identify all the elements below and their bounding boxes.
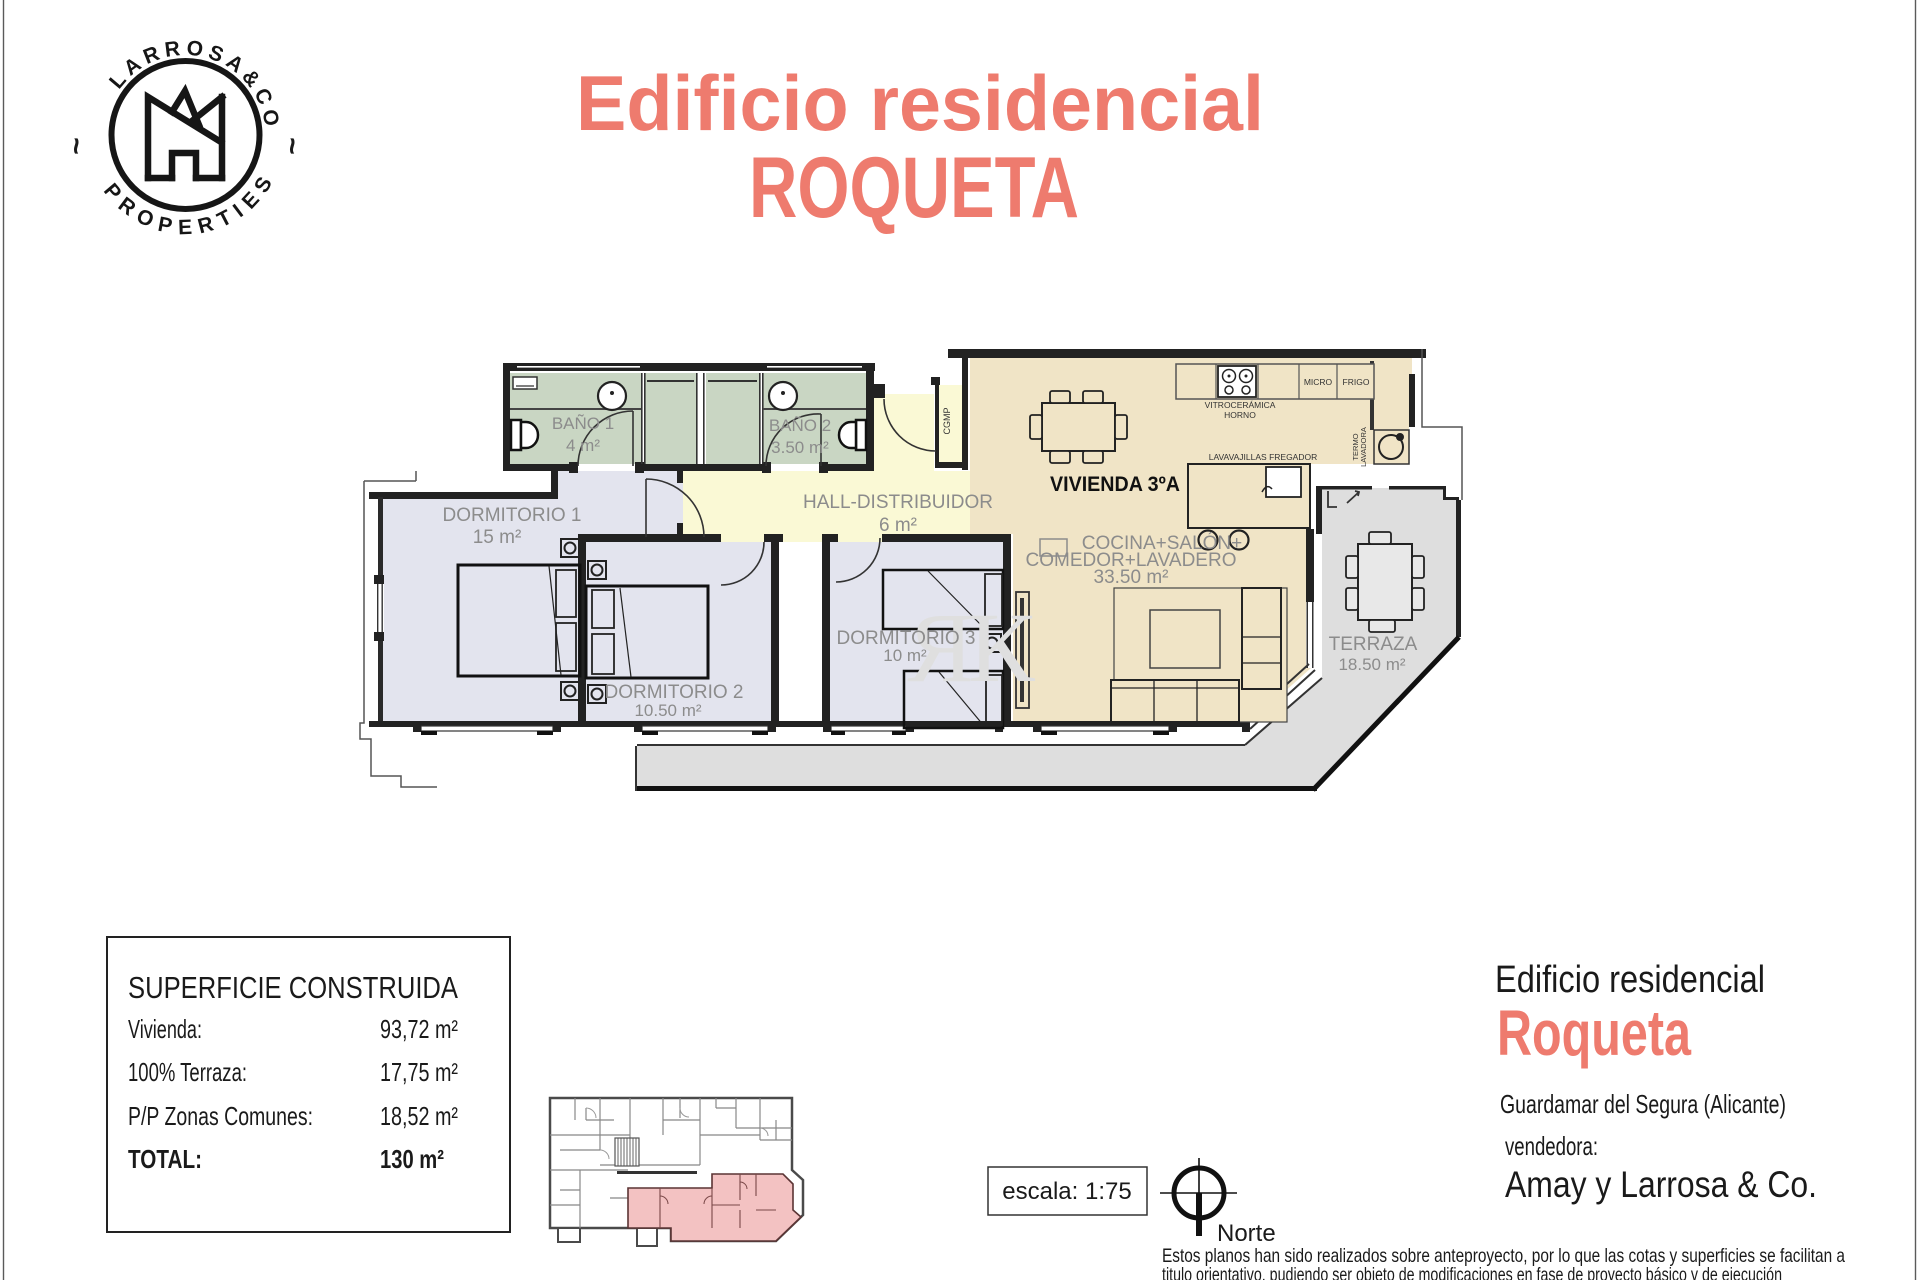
svg-text:ROQUETA: ROQUETA (749, 140, 1079, 236)
svg-text:Guardamar del Segura (Alicante: Guardamar del Segura (Alicante) (1500, 1089, 1786, 1119)
svg-text:HORNO: HORNO (1224, 410, 1256, 420)
svg-text:Amay y Larrosa & Co.: Amay y Larrosa & Co. (1505, 1164, 1817, 1205)
svg-text:10 m²: 10 m² (883, 646, 927, 665)
svg-text:100% Terraza:: 100% Terraza: (128, 1057, 247, 1087)
svg-text:~: ~ (276, 137, 309, 155)
svg-text:BAÑO 2: BAÑO 2 (769, 416, 831, 435)
svg-text:SUPERFICIE CONSTRUIDA: SUPERFICIE CONSTRUIDA (128, 970, 458, 1005)
svg-text:VIVIENDA 3ºA: VIVIENDA 3ºA (1050, 473, 1180, 496)
svg-text:FRIGO: FRIGO (1343, 377, 1370, 387)
svg-text:TERRAZA: TERRAZA (1329, 634, 1418, 655)
svg-text:VITROCERÁMICA: VITROCERÁMICA (1205, 400, 1276, 410)
svg-text:HALL-DISTRIBUIDOR: HALL-DISTRIBUIDOR (803, 492, 993, 513)
svg-text:LAVAVAJILLAS FREGADOR: LAVAVAJILLAS FREGADOR (1209, 452, 1318, 462)
svg-text:MICRO: MICRO (1304, 377, 1333, 387)
svg-text:escala: 1:75: escala: 1:75 (1002, 1178, 1131, 1205)
svg-text:vendedora:: vendedora: (1505, 1131, 1598, 1161)
svg-text:CGMP: CGMP (942, 408, 952, 435)
svg-text:33.50 m²: 33.50 m² (1094, 567, 1169, 588)
svg-text:Vivienda:: Vivienda: (128, 1014, 202, 1044)
svg-text:TOTAL:: TOTAL: (128, 1144, 202, 1174)
svg-text:10.50 m²: 10.50 m² (634, 701, 701, 720)
svg-text:Edificio residencial: Edificio residencial (576, 59, 1264, 147)
svg-text:4 m²: 4 m² (566, 436, 600, 455)
svg-text:17,75 m²: 17,75 m² (380, 1057, 458, 1087)
svg-text:130 m²: 130 m² (380, 1144, 444, 1174)
svg-text:15 m²: 15 m² (473, 527, 522, 548)
svg-text:P/P Zonas Comunes:: P/P Zonas Comunes: (128, 1101, 313, 1131)
svg-text:Edificio residencial: Edificio residencial (1495, 959, 1765, 1001)
svg-text:titulo orientativo, pudiendo s: titulo orientativo, pudiendo ser objeto … (1162, 1264, 1782, 1280)
svg-text:Norte: Norte (1217, 1220, 1276, 1247)
svg-text:~: ~ (60, 137, 93, 155)
svg-text:18.50 m²: 18.50 m² (1338, 655, 1405, 674)
svg-text:LAVADORA: LAVADORA (1359, 427, 1368, 467)
svg-text:BAÑO 1: BAÑO 1 (552, 414, 614, 433)
svg-text:18,52 m²: 18,52 m² (380, 1101, 458, 1131)
svg-text:DORMITORIO 2: DORMITORIO 2 (605, 682, 744, 703)
svg-text:Roqueta: Roqueta (1497, 997, 1691, 1069)
svg-text:DORMITORIO 1: DORMITORIO 1 (443, 505, 582, 526)
svg-text:3.50 m²: 3.50 m² (771, 438, 829, 457)
svg-text:6 m²: 6 m² (879, 515, 917, 536)
svg-text:93,72 m²: 93,72 m² (380, 1014, 458, 1044)
